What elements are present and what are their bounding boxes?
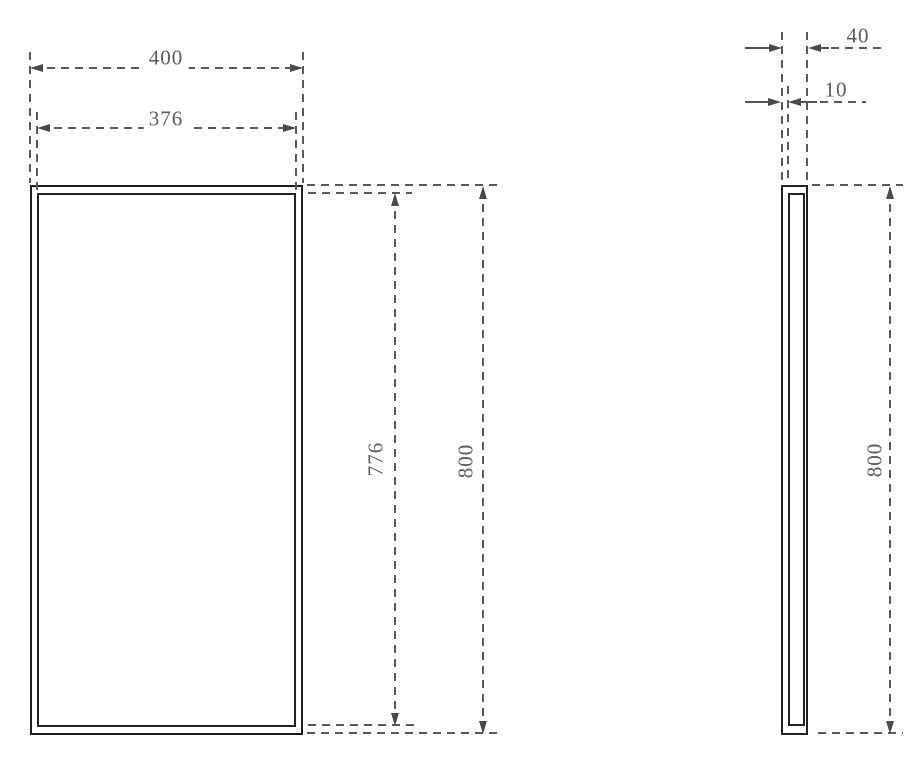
arrowhead-left-icon bbox=[808, 44, 821, 52]
arrowhead-up-icon bbox=[391, 193, 399, 206]
dim-leader-side-thickness-left bbox=[745, 101, 769, 103]
arrowhead-left-icon bbox=[788, 98, 801, 106]
dim-label-side-height: 800 bbox=[864, 440, 887, 481]
dim-label-side-depth: 40 bbox=[847, 26, 870, 47]
arrowhead-up-icon bbox=[886, 186, 894, 199]
arrowhead-left-icon bbox=[30, 64, 43, 72]
dim-line-side-height bbox=[889, 190, 891, 729]
arrowhead-down-icon bbox=[391, 713, 399, 726]
dim-line-front-inner-height bbox=[394, 197, 396, 723]
arrowhead-right-icon bbox=[769, 44, 782, 52]
dim-label-side-thickness: 10 bbox=[825, 80, 848, 101]
ext-line-front-outer-top bbox=[307, 184, 500, 186]
arrowhead-left-icon bbox=[37, 124, 50, 132]
front-view-inner-rect bbox=[37, 193, 296, 727]
technical-drawing-canvas: 400 376 776 800 40 10 800 bbox=[0, 0, 923, 770]
dim-leader-side-thickness-right bbox=[801, 101, 817, 103]
arrowhead-down-icon bbox=[479, 721, 487, 734]
ext-line-side-depth-right bbox=[806, 32, 808, 183]
dim-line-front-outer-height bbox=[482, 190, 484, 729]
ext-line-front-outer-bottom bbox=[307, 732, 500, 734]
dim-leader-side-depth-right bbox=[821, 47, 829, 49]
dim-label-front-outer-height: 800 bbox=[455, 441, 478, 482]
arrowhead-up-icon bbox=[479, 186, 487, 199]
arrowhead-right-icon bbox=[768, 98, 781, 106]
arrowhead-right-icon bbox=[290, 64, 303, 72]
dim-label-front-inner-height: 776 bbox=[365, 439, 388, 480]
arrowhead-right-icon bbox=[283, 124, 296, 132]
arrowhead-down-icon bbox=[886, 721, 894, 734]
dim-label-front-inner-width: 376 bbox=[144, 108, 189, 131]
ext-line-side-depth-left bbox=[781, 32, 783, 183]
side-view-inner-rect bbox=[788, 193, 805, 726]
dim-label-front-outer-width: 400 bbox=[144, 47, 189, 70]
dim-leader-side-depth-left bbox=[745, 47, 770, 49]
